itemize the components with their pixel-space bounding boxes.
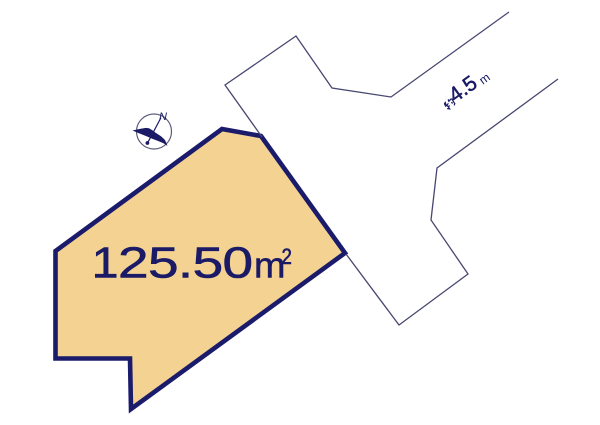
svg-text:m: m [476,70,492,87]
svg-text:1: 1 [92,238,119,287]
svg-text:N: N [159,111,167,123]
svg-text:25.50: 25.50 [118,238,253,287]
svg-text:2: 2 [282,246,292,270]
